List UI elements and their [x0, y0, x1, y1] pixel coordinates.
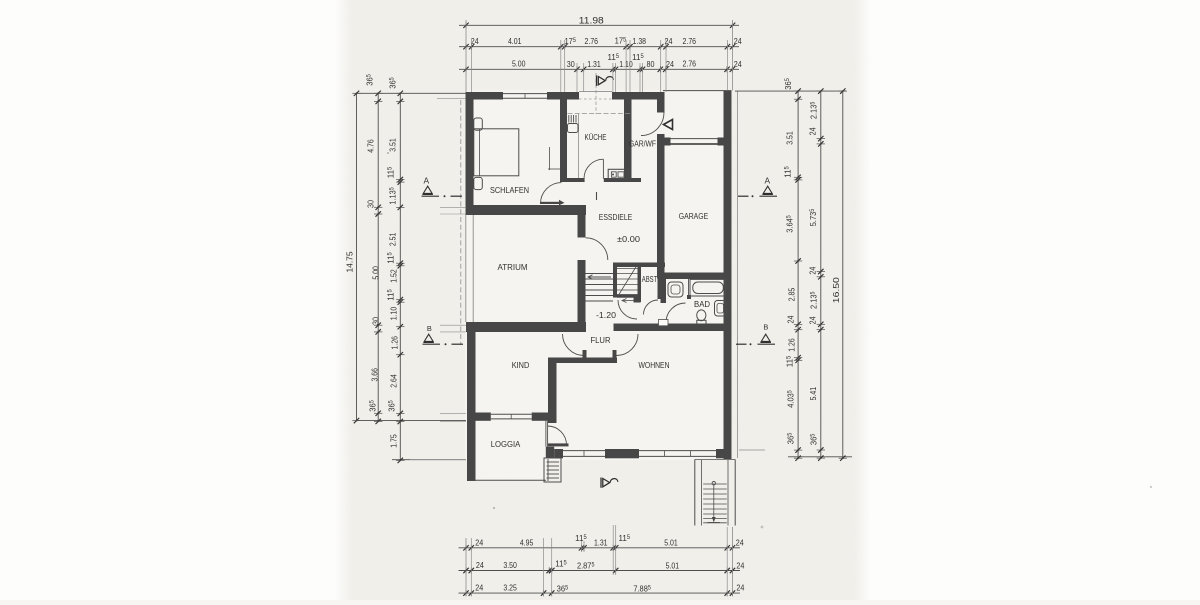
svg-text:1.38: 1.38 — [633, 36, 647, 46]
svg-text:4.76: 4.76 — [366, 139, 376, 153]
svg-text:3.66: 3.66 — [370, 368, 380, 382]
svg-text:24: 24 — [734, 59, 742, 69]
svg-text:A: A — [424, 175, 430, 185]
svg-text:80: 80 — [647, 59, 655, 69]
svg-text:24: 24 — [476, 560, 484, 570]
svg-text:2.76: 2.76 — [683, 36, 697, 46]
svg-text:SCHLAFEN: SCHLAFEN — [490, 186, 529, 195]
svg-text:3.51: 3.51 — [387, 138, 397, 152]
svg-text:4.95: 4.95 — [520, 537, 534, 547]
svg-text:24: 24 — [807, 266, 817, 274]
svg-text:24: 24 — [475, 537, 483, 547]
svg-text:5.01: 5.01 — [666, 561, 680, 571]
svg-text:24: 24 — [736, 561, 744, 571]
svg-text:24: 24 — [666, 59, 674, 69]
svg-text:30: 30 — [371, 317, 381, 325]
svg-text:24: 24 — [786, 315, 796, 323]
svg-text:KIND: KIND — [512, 361, 530, 370]
svg-text:GAR/WF: GAR/WF — [629, 140, 656, 149]
svg-text:3.50: 3.50 — [503, 560, 517, 570]
svg-text:A: A — [765, 175, 771, 185]
svg-text:LOGGIA: LOGGIA — [491, 440, 521, 449]
svg-text:24: 24 — [807, 127, 817, 135]
svg-text:3.25: 3.25 — [503, 583, 517, 593]
svg-text:ABST: ABST — [642, 275, 658, 284]
svg-text:1.52: 1.52 — [388, 269, 398, 283]
svg-text:5.00: 5.00 — [512, 59, 526, 69]
svg-text:2.76: 2.76 — [683, 59, 697, 69]
svg-text:1.31: 1.31 — [587, 59, 601, 69]
svg-text:5.01: 5.01 — [664, 537, 678, 547]
svg-text:FLUR: FLUR — [591, 336, 611, 345]
svg-text:1.10: 1.10 — [388, 307, 398, 321]
svg-text:±0.00: ±0.00 — [617, 235, 641, 244]
svg-text:BAD: BAD — [694, 300, 710, 309]
svg-text:-1.20: -1.20 — [596, 311, 617, 320]
svg-text:B: B — [427, 324, 432, 333]
svg-text:1.26: 1.26 — [787, 338, 797, 352]
svg-text:ATRIUM: ATRIUM — [498, 263, 528, 272]
svg-text:2.64: 2.64 — [388, 374, 398, 388]
svg-text:GARAGE: GARAGE — [679, 212, 709, 221]
svg-text:24: 24 — [736, 583, 744, 593]
svg-text:4.01: 4.01 — [508, 36, 522, 46]
svg-text:30: 30 — [366, 200, 376, 208]
svg-text:KÜCHE: KÜCHE — [585, 132, 607, 142]
svg-text:1.26: 1.26 — [389, 336, 399, 350]
svg-text:5.00: 5.00 — [371, 266, 381, 280]
svg-text:16.50: 16.50 — [831, 277, 841, 303]
svg-text:3.51: 3.51 — [785, 131, 795, 145]
svg-text:24: 24 — [736, 537, 744, 547]
svg-text:1.31: 1.31 — [594, 537, 608, 547]
svg-text:2.51: 2.51 — [387, 232, 397, 246]
svg-text:WOHNEN: WOHNEN — [639, 361, 670, 370]
svg-text:5.41: 5.41 — [808, 387, 818, 401]
svg-text:1.75: 1.75 — [388, 434, 398, 448]
svg-text:14.75: 14.75 — [345, 251, 355, 272]
svg-text:2.85: 2.85 — [787, 288, 797, 302]
svg-text:24: 24 — [807, 316, 817, 324]
svg-text:24: 24 — [734, 36, 742, 46]
svg-text:ESSDIELE: ESSDIELE — [599, 213, 633, 222]
svg-text:11.98: 11.98 — [579, 16, 604, 26]
svg-text:2.76: 2.76 — [585, 36, 599, 46]
svg-text:30: 30 — [567, 59, 575, 69]
svg-text:B: B — [763, 323, 768, 332]
svg-text:24: 24 — [475, 583, 483, 593]
